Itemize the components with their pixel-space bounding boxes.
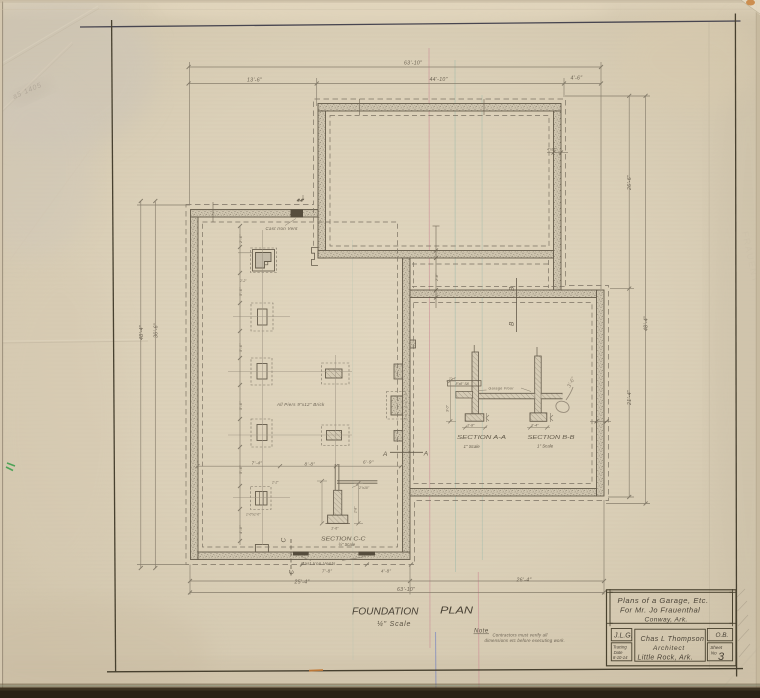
svg-text:Note: Note (474, 628, 489, 634)
svg-text:Contractors must verify all: Contractors must verify all (493, 633, 549, 638)
svg-text:6'-9": 6'-9" (363, 460, 374, 465)
svg-text:C: C (281, 538, 288, 543)
svg-text:7'-4": 7'-4" (252, 460, 263, 465)
svg-text:Little Rock, Ark.: Little Rock, Ark. (638, 654, 694, 661)
svg-text:1'-0"x1'-0": 1'-0"x1'-0" (246, 513, 261, 517)
svg-text:4"x12": 4"x12" (547, 147, 558, 151)
svg-text:26'-6": 26'-6" (627, 174, 633, 191)
svg-text:8"x8" Sill: 8"x8" Sill (456, 382, 470, 386)
svg-text:1" Scale: 1" Scale (537, 444, 554, 449)
svg-text:PLAN: PLAN (440, 605, 473, 617)
svg-text:63'-10": 63'-10" (397, 587, 416, 593)
svg-text:SECTION B-B: SECTION B-B (528, 435, 575, 441)
svg-text:dimensions etc before executin: dimensions etc before executing work. (485, 638, 566, 643)
svg-text:4'-8": 4'-8" (381, 568, 391, 573)
svg-text:1" Scale: 1" Scale (464, 444, 481, 449)
svg-text:8'-8": 8'-8" (305, 461, 316, 466)
svg-text:8-10-14: 8-10-14 (613, 655, 628, 660)
svg-text:2'-8": 2'-8" (354, 506, 358, 514)
svg-text:Date: Date (614, 650, 624, 655)
svg-text:B: B (509, 286, 516, 291)
svg-text:21'-4": 21'-4" (627, 389, 633, 406)
svg-text:For Mr. Jo Frauenthal: For Mr. Jo Frauenthal (620, 606, 700, 615)
svg-text:4'-4": 4'-4" (297, 199, 305, 203)
svg-text:48'-4": 48'-4" (644, 315, 650, 331)
svg-text:Garage Floor: Garage Floor (489, 386, 515, 390)
svg-text:B: B (509, 321, 516, 326)
svg-text:4'-6": 4'-6" (571, 76, 584, 82)
svg-text:½" Scale: ½" Scale (339, 542, 356, 547)
svg-text:7'-8": 7'-8" (322, 568, 332, 573)
svg-text:¼" Scale: ¼" Scale (377, 621, 411, 628)
svg-text:Sheet: Sheet (710, 645, 723, 650)
svg-text:Plans of a Garage, Etc.: Plans of a Garage, Etc. (618, 596, 709, 605)
svg-text:Cast Iron Vent: Cast Iron Vent (266, 226, 299, 231)
svg-text:2"x10": 2"x10" (358, 486, 370, 490)
svg-text:2'-8": 2'-8" (435, 273, 439, 282)
svg-text:36'-6": 36'-6" (153, 322, 159, 338)
svg-text:3'-0": 3'-0" (446, 404, 450, 412)
svg-text:25'-4": 25'-4" (294, 580, 311, 586)
svg-text:44'-10": 44'-10" (430, 77, 449, 83)
svg-text:2"x4": 2"x4" (448, 377, 457, 381)
svg-text:C: C (289, 570, 296, 575)
svg-text:Conway, Ark.: Conway, Ark. (645, 616, 688, 623)
svg-text:Cast Iron Vents: Cast Iron Vents (301, 561, 336, 566)
svg-text:1'-8": 1'-8" (467, 424, 475, 428)
svg-text:5'-6": 5'-6" (239, 343, 243, 352)
svg-text:Chas L Thompson: Chas L Thompson (641, 636, 705, 643)
svg-text:2'-6": 2'-6" (239, 234, 243, 244)
svg-text:13'-6": 13'-6" (247, 78, 263, 84)
svg-text:Architect: Architect (652, 645, 685, 652)
svg-text:SECTION A-A: SECTION A-A (457, 435, 506, 441)
svg-text:No: No (711, 650, 717, 655)
svg-text:5'-6": 5'-6" (239, 287, 243, 296)
svg-text:63'-10": 63'-10" (404, 61, 423, 67)
svg-text:A: A (382, 451, 387, 458)
svg-text:J.L.G.: J.L.G. (613, 633, 633, 640)
svg-text:5'-6": 5'-6" (239, 465, 243, 474)
svg-text:1'-6": 1'-6" (331, 527, 339, 531)
svg-text:2'-2": 2'-2" (271, 481, 279, 485)
svg-text:FOUNDATION: FOUNDATION (352, 606, 419, 618)
svg-text:48'-4": 48'-4" (139, 324, 145, 340)
svg-text:1'-4": 1'-4" (531, 424, 539, 428)
svg-text:26'-4": 26'-4" (516, 578, 533, 584)
svg-text:A: A (423, 451, 428, 458)
svg-text:4'-0": 4'-0" (239, 525, 243, 534)
svg-text:3: 3 (718, 651, 725, 663)
svg-text:O.B.: O.B. (716, 632, 729, 639)
svg-text:5'-6": 5'-6" (239, 401, 243, 410)
svg-text:All Piers 9"x12" Brick: All Piers 9"x12" Brick (276, 402, 325, 407)
